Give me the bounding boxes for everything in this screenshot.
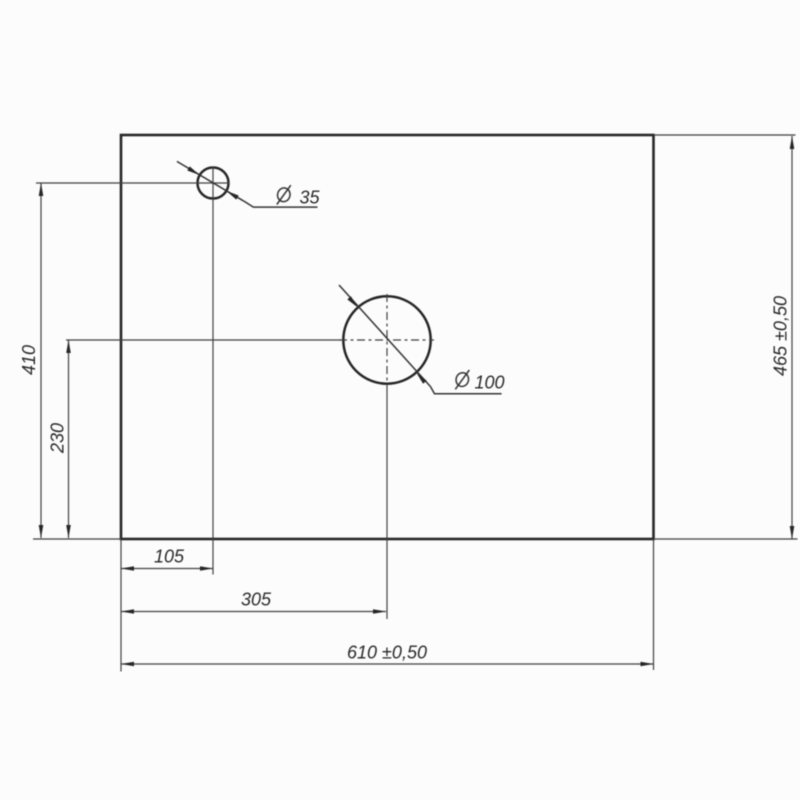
svg-text:465 ±0,50: 465 ±0,50 bbox=[771, 296, 791, 376]
svg-text:230: 230 bbox=[48, 423, 68, 454]
svg-text:610 ±0,50: 610 ±0,50 bbox=[347, 643, 427, 663]
svg-text:100: 100 bbox=[474, 373, 504, 393]
svg-text:410: 410 bbox=[19, 345, 39, 375]
svg-text:35: 35 bbox=[299, 188, 320, 208]
svg-text:105: 105 bbox=[154, 547, 185, 567]
svg-text:305: 305 bbox=[241, 590, 272, 610]
